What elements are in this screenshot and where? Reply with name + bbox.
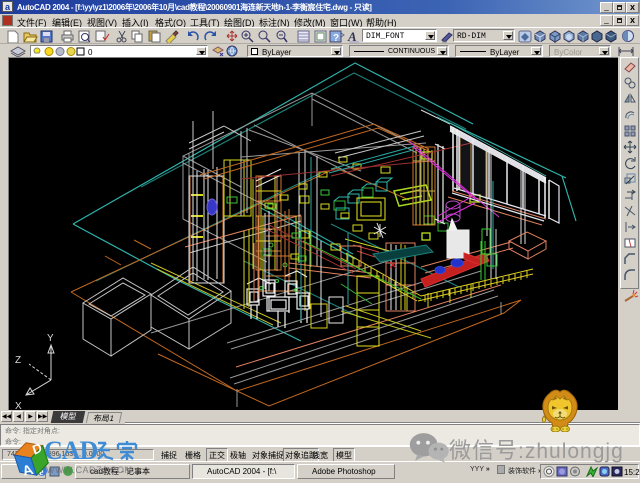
svg-text:Y: Y xyxy=(47,333,54,344)
svg-text:0: 0 xyxy=(88,48,93,56)
svg-text:Z: Z xyxy=(15,355,21,366)
